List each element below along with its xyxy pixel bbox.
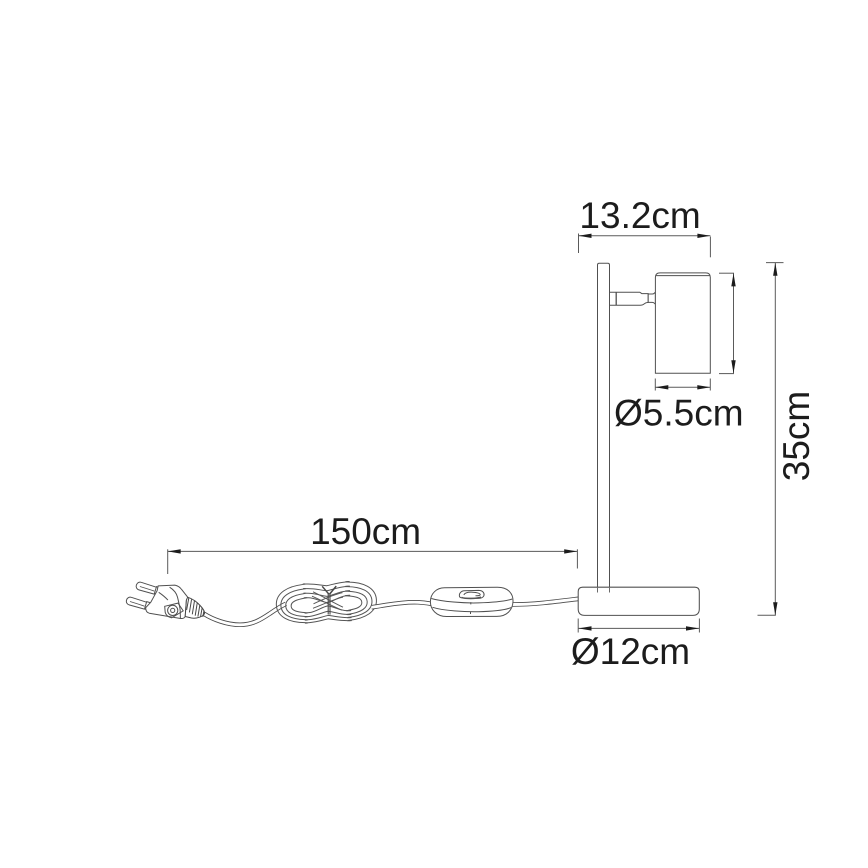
svg-text:150cm: 150cm [310,511,421,552]
svg-text:35cm: 35cm [776,391,817,481]
svg-text:13.2cm: 13.2cm [579,195,700,236]
svg-text:Ø12cm: Ø12cm [571,631,690,672]
svg-text:Ø5.5cm: Ø5.5cm [614,392,744,433]
